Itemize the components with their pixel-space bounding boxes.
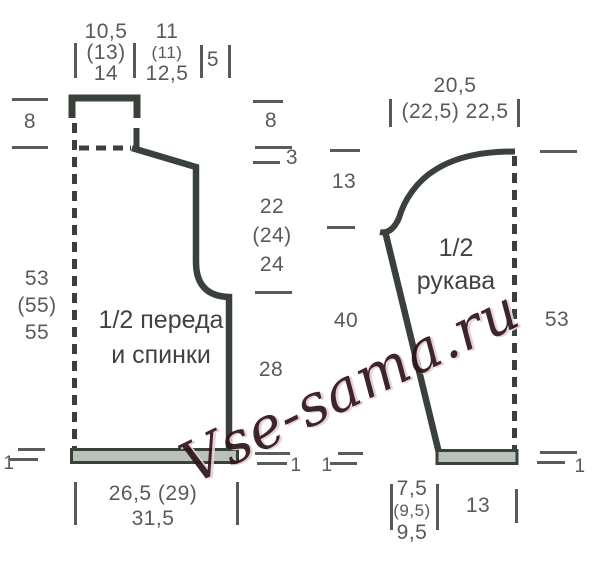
rib-double-line	[257, 462, 287, 465]
meas-sleeve-slant-width: 7,5 (9,5) 9,5	[393, 478, 430, 544]
meas-sleeve-top-width-line2: (22,5) 22,5	[401, 99, 508, 125]
meas-total-length-v2: (55)	[17, 292, 56, 319]
delimiter-bar	[390, 484, 393, 530]
rib-double-line	[18, 448, 45, 451]
rib-double-line	[10, 458, 38, 461]
rib-double-line	[537, 461, 565, 464]
delimiter-bar	[517, 99, 520, 127]
tick-mark	[253, 100, 283, 103]
meas-shoulder-bar-width-v1: 10,5	[85, 21, 128, 42]
sleeve-label-line2: рукава	[417, 269, 495, 294]
rib-double-line	[338, 452, 363, 455]
rib-double-line	[255, 452, 290, 455]
delimiter-bar	[200, 45, 203, 78]
knitting-pattern-diagram: Vse-sama.ru 1/2 переда и спинки 1/2 рука…	[0, 0, 610, 565]
meas-neck-width-v3: 12,5	[146, 63, 189, 84]
meas-rib-height-left: 1	[3, 454, 14, 473]
tick-mark	[255, 291, 292, 294]
delimiter-bar	[74, 482, 77, 525]
meas-armhole-depth-v2: (24)	[252, 221, 291, 250]
meas-armhole-width: 5	[207, 49, 219, 70]
meas-rib-height-sleeve-right: 1	[574, 457, 585, 476]
meas-rib-height-body-right: 1	[290, 456, 301, 475]
rib-double-line	[540, 451, 577, 454]
delimiter-bar	[436, 484, 439, 530]
meas-neck-width-v1: 11	[146, 21, 189, 42]
delimiter-bar	[133, 43, 136, 78]
delimiter-bar	[515, 489, 518, 523]
sleeve-cuff-ribbing-bar	[437, 451, 517, 464]
meas-sleeve-cuff-width: 13	[466, 495, 490, 516]
meas-armhole-depth-v3: 24	[252, 250, 291, 279]
meas-armhole-depth-v1: 22	[252, 192, 291, 221]
meas-total-length-v1: 53	[17, 265, 56, 292]
meas-total-length-v3: 55	[17, 319, 56, 346]
tick-mark	[253, 161, 280, 164]
meas-hem-width-line2: 31,5	[109, 506, 198, 531]
meas-rib-height-sleeve-left: 1	[321, 456, 332, 475]
meas-shoulder-bar-width-v3: 14	[85, 63, 128, 84]
meas-sleeve-top-width-line1: 20,5	[401, 73, 508, 99]
tick-mark	[540, 150, 577, 153]
front-back-shoulder-armhole-side-outline	[132, 148, 229, 451]
meas-sleeve-slant-width-v2: (9,5)	[393, 500, 430, 522]
tick-mark	[330, 149, 360, 152]
front-back-hem-ribbing-bar	[72, 450, 238, 463]
meas-neck-width-v2: (11)	[146, 42, 189, 63]
sleeve-label-line1: 1/2	[439, 236, 474, 261]
meas-armhole-depth: 22 (24) 24	[252, 192, 291, 279]
meas-hem-width: 26,5 (29) 31,5	[109, 481, 198, 531]
front-back-neckband-bar	[72, 98, 137, 118]
meas-neck-width: 11 (11) 12,5	[146, 21, 189, 84]
meas-hem-width-line1: 26,5 (29)	[109, 481, 198, 506]
delimiter-bar	[389, 99, 392, 127]
sleeve-cap-curve	[380, 152, 515, 233]
sleeve-underarm-seam-line	[385, 231, 439, 453]
meas-shoulder-bar-width: 10,5 (13) 14	[85, 21, 128, 84]
delimiter-bar	[236, 482, 239, 525]
meas-sleeve-underarm-length: 40	[334, 310, 358, 331]
meas-sleeve-total-length: 53	[545, 309, 569, 330]
meas-sleeve-top-width: 20,5 (22,5) 22,5	[401, 73, 508, 125]
meas-sleeve-cap-height: 13	[332, 171, 356, 192]
meas-sleeve-slant-width-v1: 7,5	[393, 478, 430, 500]
tick-mark	[12, 146, 48, 149]
meas-shoulder-slope: 3	[286, 147, 298, 168]
meas-neckband-height-mid: 8	[265, 110, 277, 131]
meas-sleeve-slant-width-v3: 9,5	[393, 522, 430, 544]
rib-double-line	[330, 462, 357, 465]
front-back-label-line1: 1/2 переда	[99, 308, 224, 333]
meas-neckband-height-left: 8	[24, 111, 36, 132]
delimiter-bar	[74, 43, 77, 78]
meas-side-seam-length: 28	[259, 359, 283, 380]
meas-total-length: 53 (55) 55	[17, 265, 56, 346]
tick-mark	[327, 226, 355, 229]
meas-shoulder-bar-width-v2: (13)	[85, 42, 128, 63]
pattern-shapes-canvas	[0, 0, 610, 565]
tick-mark	[12, 98, 48, 101]
front-back-label-line2: и спинки	[111, 343, 211, 368]
delimiter-bar	[228, 45, 231, 78]
